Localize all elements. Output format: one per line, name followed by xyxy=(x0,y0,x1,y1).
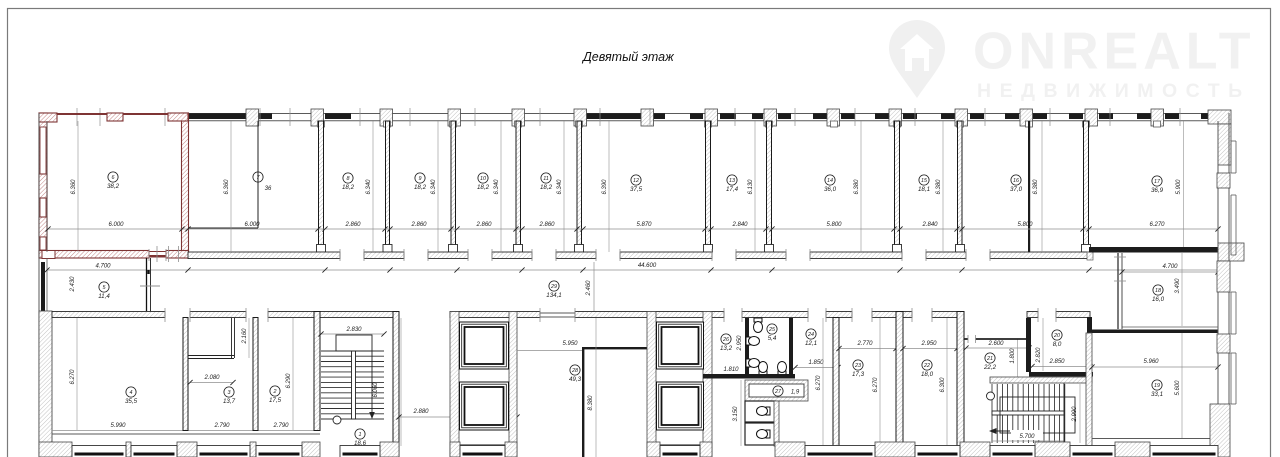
svg-text:НЕДВИЖИМОСТЬ: НЕДВИЖИМОСТЬ xyxy=(977,80,1251,102)
svg-text:10: 10 xyxy=(480,176,486,182)
svg-text:6.340: 6.340 xyxy=(431,179,437,195)
svg-text:24: 24 xyxy=(807,332,814,338)
svg-text:1.810: 1.810 xyxy=(723,367,739,373)
svg-text:8.380: 8.380 xyxy=(588,395,594,411)
svg-text:16: 16 xyxy=(1013,178,1019,184)
svg-text:35,5: 35,5 xyxy=(125,398,138,405)
svg-text:2: 2 xyxy=(273,389,277,395)
svg-text:5.900: 5.900 xyxy=(1176,179,1182,195)
svg-text:36,9: 36,9 xyxy=(1151,187,1164,194)
svg-text:44.600: 44.600 xyxy=(638,263,657,269)
svg-text:6.000: 6.000 xyxy=(244,222,260,228)
svg-text:6.060: 6.060 xyxy=(373,382,379,398)
svg-text:6.300: 6.300 xyxy=(940,377,946,393)
svg-text:6.270: 6.270 xyxy=(873,377,879,393)
svg-text:11,4: 11,4 xyxy=(98,293,110,300)
svg-text:36,0: 36,0 xyxy=(824,186,837,193)
svg-text:4: 4 xyxy=(130,390,133,396)
svg-text:1.850: 1.850 xyxy=(808,360,824,366)
svg-text:33,1: 33,1 xyxy=(1151,391,1163,398)
svg-text:8: 8 xyxy=(347,176,350,182)
svg-text:17,5: 17,5 xyxy=(269,397,282,404)
svg-text:25: 25 xyxy=(768,327,776,333)
svg-text:13: 13 xyxy=(729,178,735,184)
svg-text:2.950: 2.950 xyxy=(920,341,937,347)
svg-text:3.150: 3.150 xyxy=(733,406,739,422)
svg-text:28: 28 xyxy=(571,368,578,374)
svg-text:18,1: 18,1 xyxy=(918,186,930,193)
svg-text:27: 27 xyxy=(774,389,782,395)
svg-text:12: 12 xyxy=(633,178,639,184)
svg-text:2.880: 2.880 xyxy=(412,409,429,415)
svg-text:5.960: 5.960 xyxy=(1143,359,1159,365)
svg-text:4.700: 4.700 xyxy=(1162,264,1178,270)
svg-text:21: 21 xyxy=(986,356,993,362)
svg-text:6.380: 6.380 xyxy=(936,179,942,195)
svg-text:6.130: 6.130 xyxy=(748,179,754,195)
svg-text:38,2: 38,2 xyxy=(107,183,120,190)
svg-text:5.800: 5.800 xyxy=(826,222,842,228)
svg-text:17: 17 xyxy=(1154,179,1161,185)
svg-text:11: 11 xyxy=(543,176,549,182)
svg-text:2.600: 2.600 xyxy=(987,341,1004,347)
svg-text:18,2: 18,2 xyxy=(477,184,490,191)
svg-text:37,0: 37,0 xyxy=(1010,186,1023,193)
svg-text:Девятый этаж: Девятый этаж xyxy=(581,50,675,64)
svg-text:6.360: 6.360 xyxy=(224,179,230,195)
svg-text:2.860: 2.860 xyxy=(410,222,427,228)
svg-text:6.340: 6.340 xyxy=(557,179,563,195)
svg-text:2.950: 2.950 xyxy=(737,335,743,352)
svg-text:17,3: 17,3 xyxy=(852,371,865,378)
svg-text:18,2: 18,2 xyxy=(342,184,355,191)
svg-text:6.270: 6.270 xyxy=(1149,222,1165,228)
svg-text:18: 18 xyxy=(1155,288,1161,294)
svg-text:29: 29 xyxy=(550,284,557,290)
svg-text:20: 20 xyxy=(1053,333,1060,339)
svg-text:2.860: 2.860 xyxy=(538,222,555,228)
svg-text:3: 3 xyxy=(228,390,231,396)
svg-text:26: 26 xyxy=(722,337,729,343)
svg-text:2.850: 2.850 xyxy=(1048,359,1065,365)
svg-text:2.820: 2.820 xyxy=(1036,347,1042,364)
svg-text:2.460: 2.460 xyxy=(586,280,592,297)
svg-text:5.800: 5.800 xyxy=(1017,222,1033,228)
svg-text:2.830: 2.830 xyxy=(345,327,362,333)
svg-text:3.490: 3.490 xyxy=(1175,278,1181,294)
svg-text:6.290: 6.290 xyxy=(286,373,292,389)
svg-text:2.430: 2.430 xyxy=(70,276,76,293)
svg-text:18,2: 18,2 xyxy=(540,184,553,191)
svg-text:2.790: 2.790 xyxy=(272,423,289,429)
svg-text:2.990: 2.990 xyxy=(1072,406,1078,423)
svg-text:13,2: 13,2 xyxy=(720,345,733,352)
svg-text:18,2: 18,2 xyxy=(414,184,427,191)
svg-text:6.000: 6.000 xyxy=(108,222,124,228)
svg-text:14: 14 xyxy=(827,178,833,184)
svg-text:ONREALT: ONREALT xyxy=(973,23,1255,81)
svg-text:9: 9 xyxy=(419,176,422,182)
svg-text:5.600: 5.600 xyxy=(1175,380,1181,396)
svg-text:1,9: 1,9 xyxy=(791,390,800,396)
svg-text:6.270: 6.270 xyxy=(70,369,76,385)
svg-text:6: 6 xyxy=(112,175,115,181)
svg-text:36: 36 xyxy=(265,186,272,192)
svg-text:2.160: 2.160 xyxy=(242,328,248,345)
svg-text:49,3: 49,3 xyxy=(569,376,582,383)
svg-text:22: 22 xyxy=(923,363,930,369)
svg-text:13,7: 13,7 xyxy=(223,398,236,405)
svg-text:5.950: 5.950 xyxy=(562,341,578,347)
svg-text:2.840: 2.840 xyxy=(921,222,938,228)
svg-text:5.990: 5.990 xyxy=(110,423,126,429)
svg-text:2.860: 2.860 xyxy=(344,222,361,228)
svg-text:16,0: 16,0 xyxy=(1152,296,1165,303)
svg-text:6.340: 6.340 xyxy=(366,179,372,195)
svg-text:5.700: 5.700 xyxy=(1019,434,1035,440)
svg-text:6.390: 6.390 xyxy=(602,179,608,195)
svg-text:2.770: 2.770 xyxy=(856,341,873,347)
svg-text:17,4: 17,4 xyxy=(726,186,739,193)
svg-text:18,0: 18,0 xyxy=(921,371,934,378)
svg-text:15: 15 xyxy=(921,178,928,184)
svg-text:4.700: 4.700 xyxy=(95,264,111,270)
svg-text:2.860: 2.860 xyxy=(475,222,492,228)
svg-text:37,5: 37,5 xyxy=(630,186,643,193)
svg-text:1: 1 xyxy=(359,432,362,438)
svg-text:12,1: 12,1 xyxy=(805,340,817,347)
svg-text:23: 23 xyxy=(854,363,861,369)
svg-text:19: 19 xyxy=(1154,383,1160,389)
svg-text:2.840: 2.840 xyxy=(731,222,748,228)
svg-text:5,4: 5,4 xyxy=(768,335,777,342)
svg-text:6.270: 6.270 xyxy=(816,375,822,391)
svg-text:2.790: 2.790 xyxy=(213,423,230,429)
svg-text:2.080: 2.080 xyxy=(203,375,220,381)
svg-text:6.380: 6.380 xyxy=(1033,179,1039,195)
svg-text:6.340: 6.340 xyxy=(494,179,500,195)
svg-text:1.800: 1.800 xyxy=(1010,348,1016,364)
svg-text:22,2: 22,2 xyxy=(983,364,997,371)
svg-text:6.360: 6.360 xyxy=(71,179,77,195)
svg-text:8,0: 8,0 xyxy=(1053,341,1062,348)
svg-text:134,1: 134,1 xyxy=(546,292,561,299)
svg-text:6.380: 6.380 xyxy=(854,179,860,195)
svg-text:5.870: 5.870 xyxy=(636,222,652,228)
